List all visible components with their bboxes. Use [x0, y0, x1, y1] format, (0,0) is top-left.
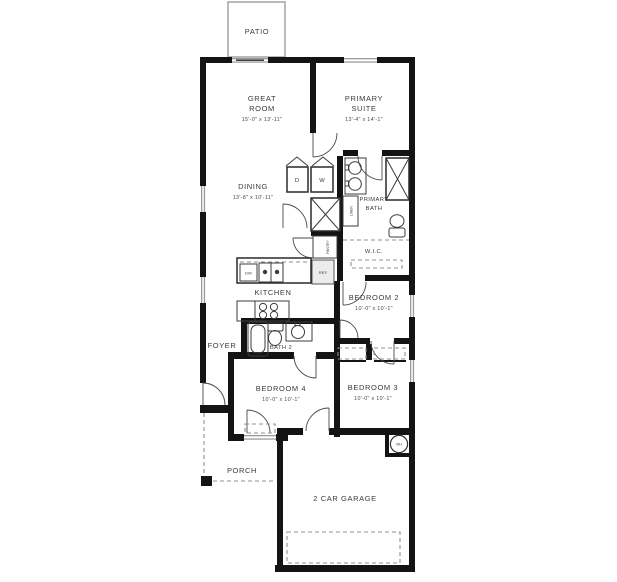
garage-door-outline	[287, 532, 400, 563]
bedroom2-label: BEDROOM 2	[349, 293, 399, 302]
bedroom4-dims: 10'-0" x 10'-1"	[262, 397, 300, 403]
burner-icon	[259, 311, 266, 318]
patio-slider-door	[232, 58, 268, 63]
dishwasher-label: DW	[245, 271, 252, 276]
linen-closet-door	[340, 320, 358, 338]
burner-icon	[270, 311, 277, 318]
front-door	[203, 383, 225, 405]
floor-plan: PATIO GREAT ROOM 15'-0" x 13'-11" PRIMAR…	[0, 0, 617, 582]
foyer-label: FOYER	[208, 341, 237, 350]
garage-entry-door	[306, 408, 329, 431]
bedroom2-dims: 10'-0" x 10'-1"	[355, 306, 393, 312]
sink-icon	[292, 326, 305, 339]
water-heater-label: WH	[396, 443, 402, 447]
tub-basin	[251, 325, 265, 353]
faucet-icon	[345, 181, 349, 186]
bath2-label: BATH 2	[270, 345, 292, 351]
porch-label: PORCH	[227, 466, 257, 475]
dining-dims: 13'-8" x 10'-11"	[233, 195, 274, 201]
bedroom4-label: BEDROOM 4	[256, 384, 306, 393]
toilet-icon	[269, 331, 282, 346]
bedroom4-door	[294, 356, 316, 378]
dining-window	[201, 186, 205, 212]
great-room-dims: 15'-0" x 13'-11"	[242, 117, 283, 123]
great-room-label: GREAT	[248, 94, 276, 103]
burner-icon	[259, 303, 266, 310]
wic-shelf	[351, 260, 402, 268]
burner-icon	[270, 303, 277, 310]
toilet-tank	[389, 228, 405, 237]
vanity-counter	[345, 158, 366, 194]
bedroom2-window	[410, 295, 414, 317]
bedroom3-window	[410, 360, 414, 382]
dining-label: DINING	[238, 182, 268, 191]
toilet-icon	[390, 215, 404, 228]
hall-closet-door	[283, 204, 307, 228]
bifold-door-icon	[286, 157, 334, 166]
pantry-door	[293, 238, 313, 258]
linen-label: LINEN	[350, 205, 354, 216]
patio-label: PATIO	[245, 27, 269, 36]
primary-suite-window	[344, 58, 377, 63]
sink-icon	[349, 162, 362, 175]
refrigerator-label: REF	[319, 270, 328, 275]
sink-icon	[349, 178, 362, 191]
kitchen-label: KITCHEN	[254, 288, 291, 297]
primary-suite-dims: 13'-4" x 14'-1"	[345, 117, 383, 123]
bedroom3-label: BEDROOM 3	[348, 383, 398, 392]
hall-closet-x	[311, 198, 340, 231]
great-room-label: ROOM	[249, 104, 275, 113]
bedroom4-closet-door	[247, 410, 270, 433]
dryer-label: D	[295, 178, 299, 184]
exterior-walls	[200, 57, 415, 572]
primary-suite-label: PRIMARY	[345, 94, 383, 103]
foyer-window	[201, 277, 205, 303]
toilet-tank	[268, 323, 283, 331]
garage-label: 2 CAR GARAGE	[313, 494, 376, 503]
porch-outline	[201, 413, 276, 486]
laundry-closet	[286, 157, 334, 192]
primary-suite-label: SUITE	[351, 104, 376, 113]
bedroom4-closet-shelf	[245, 424, 275, 433]
pantry-closet	[313, 236, 337, 258]
faucet-icon	[345, 165, 349, 170]
floor-plan-canvas: PATIO GREAT ROOM 15'-0" x 13'-11" PRIMAR…	[0, 0, 617, 582]
porch-post	[201, 476, 212, 486]
bedroom4-window	[244, 435, 276, 440]
wic-label: W.I.C.	[365, 249, 383, 255]
primary-bath-label: PRIMARY	[359, 197, 388, 203]
primary-suite-door	[313, 133, 337, 157]
bedroom3-dims: 10'-0" x 10'-1"	[354, 396, 392, 402]
primary-bath-label: BATH	[366, 206, 383, 212]
pantry-label: PANTRY	[326, 240, 330, 254]
washer-label: W	[319, 178, 325, 184]
